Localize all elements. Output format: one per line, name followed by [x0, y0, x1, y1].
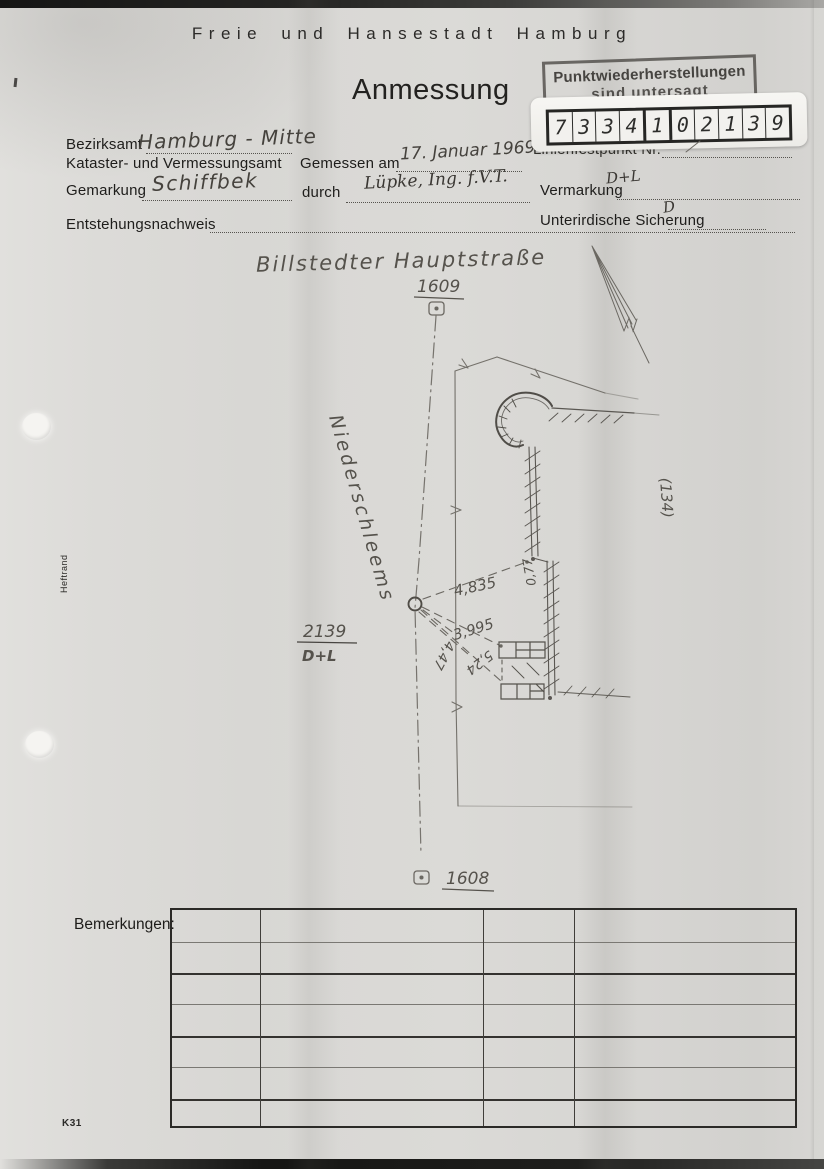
survey-point-circle-icon: [409, 598, 422, 611]
form-code: K31: [62, 1118, 82, 1129]
hook-curve: [496, 393, 552, 448]
north-arrow-icon: [592, 246, 649, 363]
remarks-label: Bemerkungen:: [74, 916, 175, 934]
street-name-label: Billstedter Hauptstraße: [256, 245, 547, 277]
scanned-document-page: Heftrand Freie und Hansestadt Hamburg An…: [0, 0, 824, 1169]
road-name-label: Niederschleems: [324, 412, 399, 605]
ground-line-top: [549, 408, 659, 423]
station-mark-label: D+L: [302, 647, 337, 665]
wall-lower: [544, 561, 559, 700]
point-marker-top-icon: [429, 302, 444, 315]
measurement-label: 0,77: [519, 557, 539, 587]
building-footprints: [499, 642, 545, 699]
ground-line-bottom: [558, 686, 630, 698]
remarks-table: [170, 908, 797, 1128]
measurement-label: 4,835: [452, 573, 498, 600]
point-1609-label: 1609: [417, 277, 460, 297]
parcel-number-label: (134): [656, 477, 677, 519]
table-gridline-v: [483, 910, 484, 1126]
measurement-label: 4,47: [429, 638, 457, 672]
station-number-label: 2139: [303, 622, 346, 642]
point-1608-label: 1608: [446, 869, 489, 889]
table-gridline-v: [260, 910, 261, 1126]
wall-upper: [525, 447, 548, 562]
table-gridline-v: [574, 910, 575, 1126]
point-marker-bottom-icon: [414, 871, 429, 884]
survey-centerline: [415, 316, 436, 855]
